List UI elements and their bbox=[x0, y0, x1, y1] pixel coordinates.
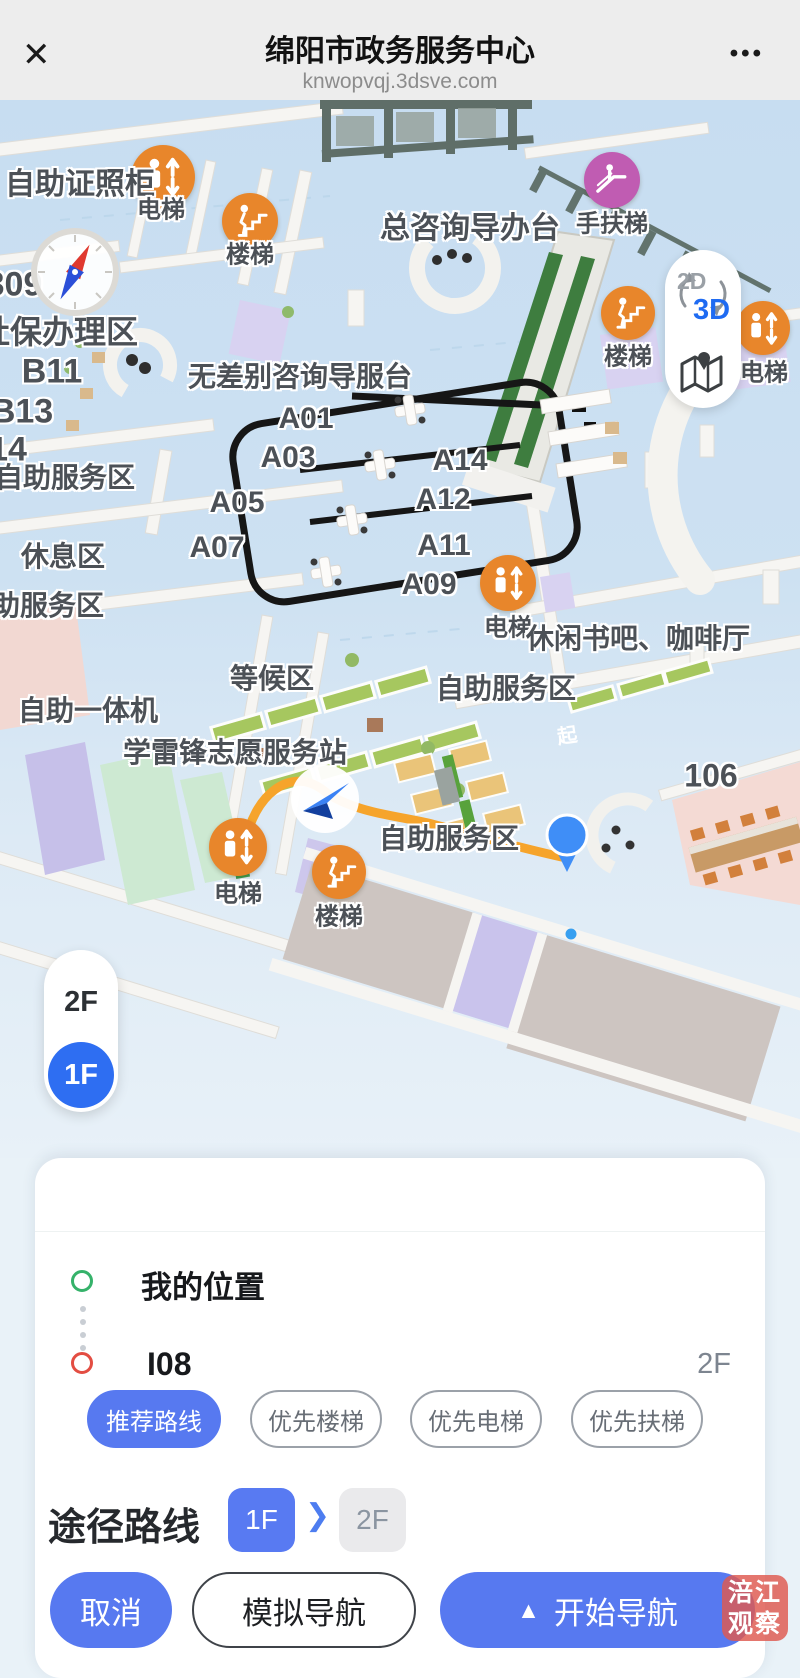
app-screen: ✕ 绵阳市政务服务中心 knwopvqj.3dsve.com ••• bbox=[0, 0, 800, 1653]
origin-dot bbox=[71, 1270, 93, 1292]
elevator-icon[interactable] bbox=[131, 145, 195, 209]
navigation-arrow-icon: ▲ bbox=[517, 1597, 540, 1624]
start-navigation-button[interactable]: ▲ 开始导航 bbox=[440, 1572, 755, 1648]
watermark-line2: 观察 bbox=[722, 1608, 788, 1639]
mode-2d-label: 2D bbox=[677, 268, 706, 295]
floor-option-2f[interactable]: 2F bbox=[44, 986, 118, 1019]
map-overview-icon[interactable] bbox=[677, 348, 729, 396]
route-option-elevator-first[interactable]: 优先电梯 bbox=[410, 1390, 542, 1448]
start-marker-label: 起 bbox=[555, 718, 579, 750]
elevator-icon[interactable] bbox=[480, 555, 536, 611]
simulate-navigation-button[interactable]: 模拟导航 bbox=[192, 1572, 416, 1648]
page-url: knwopvqj.3dsve.com bbox=[0, 70, 800, 94]
poi-dot bbox=[566, 929, 577, 940]
origin-label: 我的位置 bbox=[141, 1262, 265, 1307]
divider bbox=[35, 1231, 765, 1232]
destination-label: I08 bbox=[147, 1346, 191, 1383]
chevron-right-icon: ❯ bbox=[305, 1498, 330, 1533]
watermark-stamp: 涪江 观察 bbox=[722, 1575, 788, 1641]
floor-switcher: 2F 1F bbox=[44, 950, 118, 1112]
compass-icon[interactable] bbox=[30, 227, 120, 317]
route-option-recommended[interactable]: 推荐路线 bbox=[87, 1390, 221, 1448]
cancel-button[interactable]: 取消 bbox=[50, 1572, 172, 1648]
floor-option-1f-selected[interactable]: 1F bbox=[48, 1042, 114, 1108]
via-floor-2f[interactable]: 2F bbox=[339, 1488, 406, 1552]
start-pin bbox=[547, 815, 587, 872]
more-menu-icon[interactable]: ••• bbox=[730, 40, 764, 68]
elevator-icon[interactable] bbox=[209, 818, 267, 876]
mode-3d-label: 3D bbox=[693, 294, 730, 327]
page-title: 绵阳市政务服务中心 bbox=[0, 26, 800, 70]
route-option-escalator-first[interactable]: 优先扶梯 bbox=[571, 1390, 703, 1448]
indoor-map[interactable]: 自助证照柜 电梯 楼梯 总咨询导办台 手扶梯 309 社保办理区 B11 B13… bbox=[0, 100, 800, 1158]
via-route-label: 途径路线 bbox=[48, 1496, 200, 1551]
start-navigation-label: 开始导航 bbox=[554, 1588, 678, 1633]
desk-clusters bbox=[309, 389, 627, 589]
watermark-line1: 涪江 bbox=[722, 1577, 788, 1608]
route-panel: 我的位置 I08 2F 推荐路线 优先楼梯 优先电梯 优先扶梯 途径路线 1F … bbox=[35, 1158, 765, 1678]
route-dots bbox=[80, 1306, 86, 1358]
stairs-icon[interactable] bbox=[222, 193, 278, 249]
route-option-stairs-first[interactable]: 优先楼梯 bbox=[250, 1390, 382, 1448]
title-bar: ✕ 绵阳市政务服务中心 knwopvqj.3dsve.com ••• bbox=[0, 0, 800, 100]
stairs-icon[interactable] bbox=[312, 845, 366, 899]
destination-dot bbox=[71, 1352, 93, 1374]
destination-floor: 2F bbox=[697, 1348, 731, 1381]
stairs-icon[interactable] bbox=[601, 286, 655, 340]
elevator-icon[interactable] bbox=[736, 301, 790, 355]
current-location-marker bbox=[287, 761, 363, 837]
via-floor-1f[interactable]: 1F bbox=[228, 1488, 295, 1552]
escalator-icon[interactable] bbox=[584, 152, 640, 208]
view-mode-toggle[interactable]: 2D 3D bbox=[665, 250, 741, 408]
